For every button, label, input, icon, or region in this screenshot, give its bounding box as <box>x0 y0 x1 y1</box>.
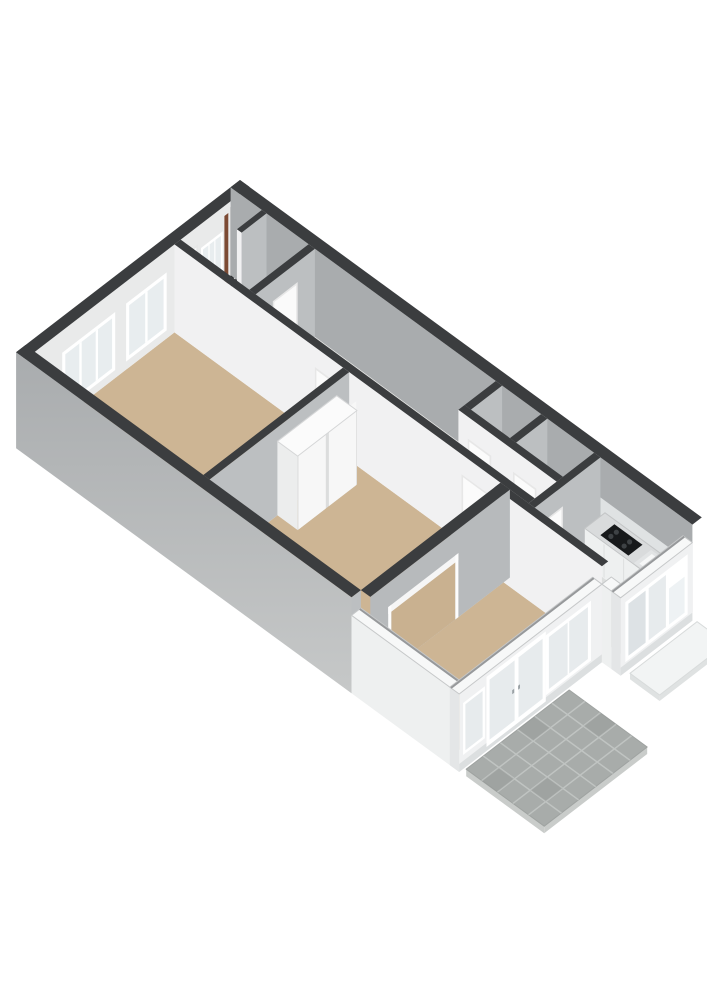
floorplan-page <box>0 0 707 1000</box>
floorplan-3d-view <box>0 0 707 1000</box>
